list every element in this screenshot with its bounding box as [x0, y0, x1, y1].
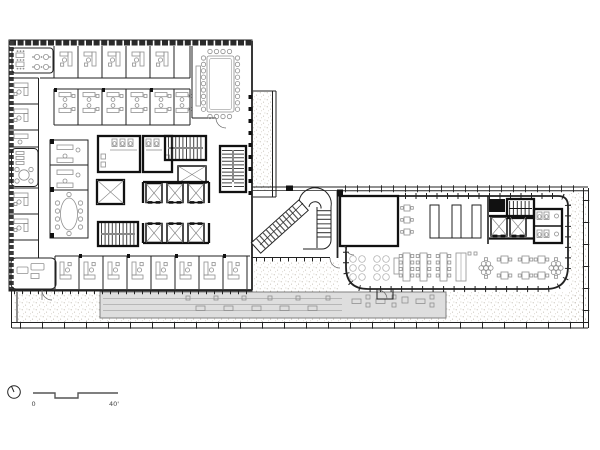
scale-start-label: 0 — [32, 400, 36, 408]
scale-end-label: 40' — [109, 400, 119, 408]
floor-plan-drawing: 0 40' — [0, 0, 600, 450]
floor-plan-page: 0 40' — [0, 0, 600, 450]
upper-balcony-paving — [253, 92, 272, 196]
covered-terrace — [100, 292, 446, 318]
